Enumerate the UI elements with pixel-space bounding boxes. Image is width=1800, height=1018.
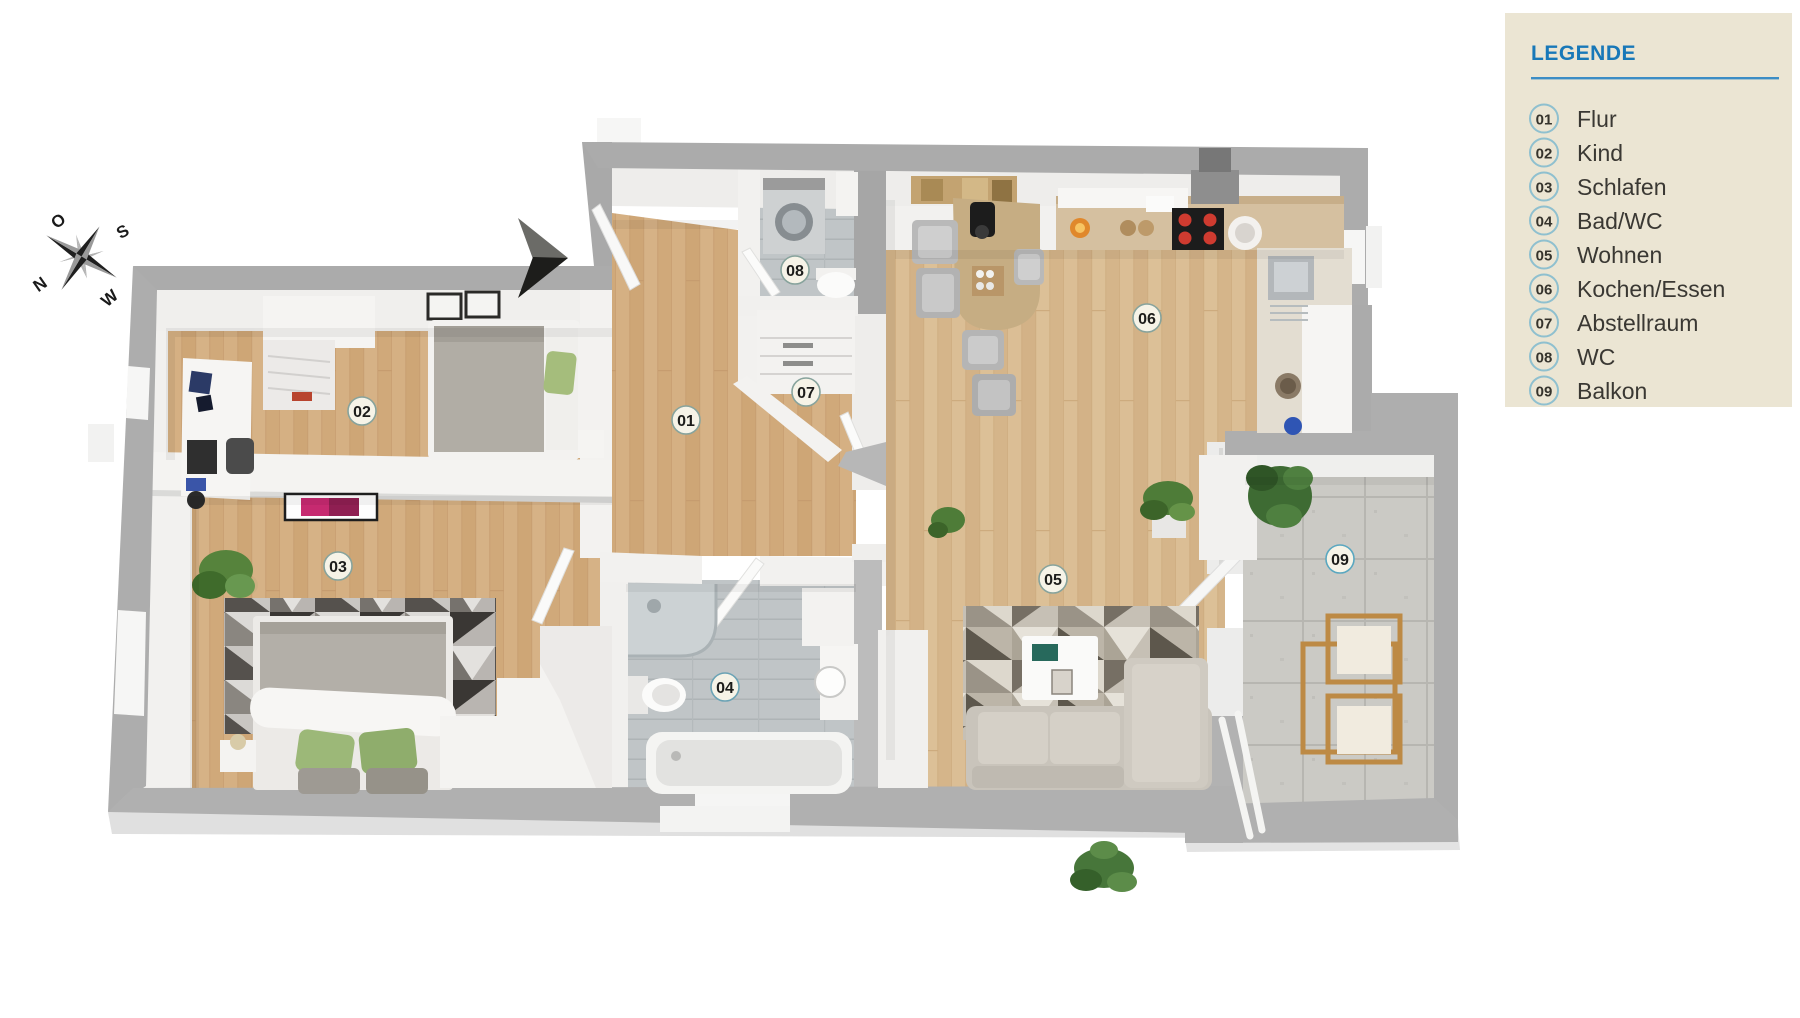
svg-text:Kochen/Essen: Kochen/Essen [1577,276,1725,302]
svg-text:07: 07 [1536,316,1553,333]
svg-text:Wohnen: Wohnen [1577,242,1662,268]
svg-text:06: 06 [1536,282,1553,299]
svg-text:07: 07 [797,385,815,402]
svg-text:08: 08 [1536,350,1553,367]
svg-text:LEGENDE: LEGENDE [1531,42,1636,65]
svg-text:09: 09 [1331,552,1349,569]
svg-text:04: 04 [1536,214,1553,231]
svg-text:WC: WC [1577,344,1615,370]
svg-text:06: 06 [1138,311,1156,328]
svg-text:08: 08 [786,263,804,280]
svg-text:05: 05 [1536,248,1553,265]
svg-text:Bad/WC: Bad/WC [1577,208,1663,234]
svg-text:01: 01 [677,413,695,430]
svg-text:01: 01 [1536,112,1553,129]
svg-text:Kind: Kind [1577,140,1623,166]
svg-text:Flur: Flur [1577,106,1617,132]
svg-text:Abstellraum: Abstellraum [1577,310,1698,336]
svg-text:02: 02 [1536,146,1553,163]
svg-text:Balkon: Balkon [1577,378,1647,404]
svg-text:05: 05 [1044,572,1062,589]
svg-text:09: 09 [1536,384,1553,401]
svg-text:03: 03 [1536,180,1553,197]
svg-text:04: 04 [716,680,734,697]
svg-text:Schlafen: Schlafen [1577,174,1667,200]
svg-text:03: 03 [329,559,347,576]
svg-text:02: 02 [353,404,371,421]
